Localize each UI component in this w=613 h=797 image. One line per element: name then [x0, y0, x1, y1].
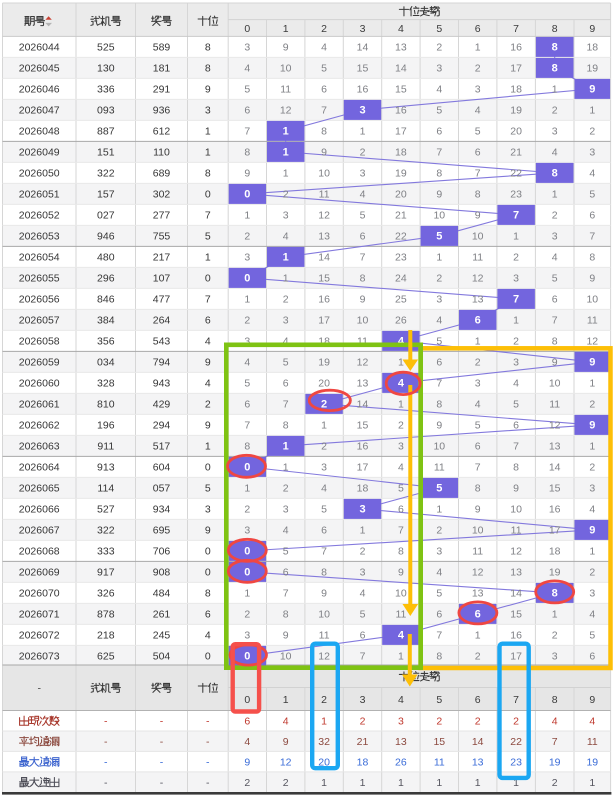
- svg-text:26: 26: [395, 756, 407, 768]
- svg-text:6: 6: [475, 147, 481, 159]
- svg-text:5: 5: [589, 630, 595, 642]
- svg-text:11: 11: [395, 609, 406, 621]
- svg-text:322: 322: [97, 168, 115, 180]
- svg-text:11: 11: [434, 462, 445, 474]
- svg-text:625: 625: [97, 651, 115, 663]
- svg-text:1: 1: [321, 777, 327, 789]
- svg-text:-: -: [160, 777, 164, 789]
- svg-text:6: 6: [283, 567, 289, 579]
- svg-text:4: 4: [283, 716, 289, 728]
- svg-text:0: 0: [205, 189, 211, 201]
- svg-text:6: 6: [244, 105, 250, 117]
- svg-text:4: 4: [475, 399, 481, 411]
- svg-text:2026059: 2026059: [19, 357, 60, 369]
- svg-text:1: 1: [552, 189, 558, 201]
- svg-text:11: 11: [434, 756, 445, 768]
- svg-text:22: 22: [510, 168, 522, 180]
- svg-text:7: 7: [205, 294, 211, 306]
- svg-text:13: 13: [357, 378, 369, 390]
- svg-text:6: 6: [436, 357, 442, 369]
- svg-text:3: 3: [475, 378, 481, 390]
- svg-text:2: 2: [244, 231, 250, 243]
- svg-text:0: 0: [244, 273, 250, 285]
- svg-text:7: 7: [513, 23, 519, 35]
- svg-text:9: 9: [205, 525, 211, 537]
- svg-text:12: 12: [586, 336, 598, 348]
- svg-text:2: 2: [244, 504, 250, 516]
- svg-text:8: 8: [360, 273, 366, 285]
- svg-text:20: 20: [510, 126, 522, 138]
- svg-text:911: 911: [97, 441, 114, 453]
- svg-text:2: 2: [436, 525, 442, 537]
- svg-text:22: 22: [510, 736, 522, 748]
- svg-text:110: 110: [153, 147, 170, 159]
- svg-text:8: 8: [283, 609, 289, 621]
- svg-text:589: 589: [153, 42, 171, 54]
- svg-text:2026060: 2026060: [19, 378, 60, 390]
- svg-text:25: 25: [395, 294, 407, 306]
- svg-text:13: 13: [395, 42, 407, 54]
- svg-text:2: 2: [475, 651, 481, 663]
- svg-text:14: 14: [318, 252, 330, 264]
- svg-text:3: 3: [552, 126, 558, 138]
- svg-text:17: 17: [510, 651, 522, 663]
- svg-text:7: 7: [436, 378, 442, 390]
- svg-text:12: 12: [280, 756, 292, 768]
- svg-text:13: 13: [395, 736, 407, 748]
- svg-text:17: 17: [510, 63, 522, 75]
- svg-text:15: 15: [318, 273, 330, 285]
- svg-text:15: 15: [357, 420, 369, 432]
- svg-text:2: 2: [283, 483, 289, 495]
- svg-text:2: 2: [475, 357, 481, 369]
- svg-text:-: -: [104, 777, 108, 789]
- svg-text:5: 5: [244, 378, 250, 390]
- svg-text:1: 1: [283, 694, 289, 706]
- svg-text:8: 8: [436, 399, 442, 411]
- svg-text:3: 3: [436, 294, 442, 306]
- svg-text:429: 429: [153, 399, 171, 411]
- svg-text:604: 604: [153, 462, 171, 474]
- svg-text:2026065: 2026065: [19, 483, 60, 495]
- svg-text:10: 10: [318, 168, 330, 180]
- svg-text:10: 10: [395, 588, 407, 600]
- svg-text:9: 9: [205, 420, 211, 432]
- svg-text:19: 19: [549, 756, 561, 768]
- svg-text:3: 3: [321, 462, 327, 474]
- svg-text:3: 3: [589, 588, 595, 600]
- svg-text:7: 7: [589, 231, 595, 243]
- svg-text:11: 11: [472, 546, 483, 558]
- svg-text:3: 3: [475, 84, 481, 96]
- svg-text:7: 7: [360, 651, 366, 663]
- svg-text:5: 5: [283, 546, 289, 558]
- svg-text:7: 7: [436, 147, 442, 159]
- svg-text:10: 10: [433, 441, 445, 453]
- svg-text:2: 2: [513, 336, 519, 348]
- svg-text:6: 6: [244, 399, 250, 411]
- svg-text:1: 1: [589, 105, 595, 117]
- svg-text:934: 934: [153, 504, 171, 516]
- svg-text:7: 7: [205, 210, 211, 222]
- svg-text:1: 1: [513, 231, 519, 243]
- svg-text:1: 1: [244, 294, 250, 306]
- svg-text:13: 13: [472, 294, 484, 306]
- svg-text:11: 11: [472, 252, 483, 264]
- svg-text:6: 6: [475, 609, 481, 621]
- svg-text:1: 1: [205, 147, 211, 159]
- svg-text:1: 1: [283, 252, 289, 264]
- svg-text:7: 7: [513, 210, 519, 222]
- svg-text:14: 14: [472, 736, 484, 748]
- svg-text:23: 23: [395, 252, 407, 264]
- svg-text:2026068: 2026068: [19, 546, 60, 558]
- svg-text:4: 4: [244, 357, 250, 369]
- svg-text:7: 7: [321, 546, 327, 558]
- svg-text:527: 527: [97, 504, 115, 516]
- svg-text:9: 9: [589, 273, 595, 285]
- svg-text:9: 9: [552, 357, 558, 369]
- svg-text:6: 6: [475, 23, 481, 35]
- svg-text:8: 8: [244, 147, 250, 159]
- svg-text:1: 1: [436, 252, 442, 264]
- svg-text:384: 384: [97, 315, 115, 327]
- svg-text:16: 16: [357, 84, 369, 96]
- svg-text:19: 19: [395, 168, 407, 180]
- svg-text:1: 1: [589, 441, 595, 453]
- svg-text:0: 0: [244, 23, 250, 35]
- svg-text:16: 16: [510, 42, 522, 54]
- svg-text:8: 8: [475, 483, 481, 495]
- svg-text:3: 3: [398, 716, 404, 728]
- svg-text:2026051: 2026051: [19, 189, 60, 201]
- svg-text:1: 1: [283, 273, 289, 285]
- svg-text:2026044: 2026044: [19, 42, 60, 54]
- svg-text:887: 887: [97, 126, 115, 138]
- svg-text:10: 10: [472, 231, 484, 243]
- svg-text:-: -: [104, 756, 108, 768]
- svg-text:1: 1: [475, 630, 481, 642]
- svg-text:32: 32: [318, 736, 330, 748]
- svg-text:4: 4: [552, 147, 558, 159]
- svg-text:7: 7: [513, 441, 519, 453]
- svg-text:107: 107: [153, 273, 171, 285]
- svg-text:8: 8: [552, 694, 558, 706]
- svg-text:8: 8: [321, 126, 327, 138]
- svg-text:2026055: 2026055: [19, 273, 60, 285]
- svg-text:4: 4: [398, 462, 404, 474]
- svg-text:4: 4: [398, 23, 404, 35]
- svg-text:2: 2: [552, 777, 558, 789]
- svg-text:2: 2: [589, 399, 595, 411]
- svg-text:11: 11: [511, 525, 522, 537]
- svg-text:1: 1: [436, 504, 442, 516]
- svg-text:4: 4: [513, 378, 519, 390]
- svg-text:-: -: [104, 716, 108, 728]
- svg-text:5: 5: [436, 231, 442, 243]
- svg-text:4: 4: [589, 504, 595, 516]
- svg-text:9: 9: [244, 168, 250, 180]
- svg-text:878: 878: [97, 609, 115, 621]
- svg-text:23: 23: [510, 189, 522, 201]
- svg-text:356: 356: [97, 336, 115, 348]
- svg-text:6: 6: [205, 315, 211, 327]
- svg-text:18: 18: [510, 84, 522, 96]
- svg-text:2: 2: [398, 420, 404, 432]
- svg-text:15: 15: [357, 63, 369, 75]
- svg-text:1: 1: [244, 210, 250, 222]
- svg-text:5: 5: [360, 609, 366, 621]
- svg-text:4: 4: [552, 252, 558, 264]
- svg-text:9: 9: [589, 420, 595, 432]
- svg-text:034: 034: [97, 357, 115, 369]
- svg-text:2: 2: [321, 23, 327, 35]
- svg-text:12: 12: [472, 273, 484, 285]
- svg-text:5: 5: [205, 231, 211, 243]
- svg-text:7: 7: [513, 694, 519, 706]
- svg-text:9: 9: [321, 588, 327, 600]
- svg-text:2: 2: [589, 126, 595, 138]
- svg-text:4: 4: [205, 378, 211, 390]
- svg-text:3: 3: [360, 23, 366, 35]
- svg-text:5: 5: [552, 273, 558, 285]
- svg-text:2026073: 2026073: [19, 651, 60, 663]
- svg-text:4: 4: [589, 716, 595, 728]
- svg-text:15: 15: [433, 736, 445, 748]
- svg-text:543: 543: [153, 336, 171, 348]
- svg-text:18: 18: [395, 147, 407, 159]
- svg-text:4: 4: [552, 716, 558, 728]
- svg-text:3: 3: [436, 546, 442, 558]
- svg-text:706: 706: [153, 546, 171, 558]
- svg-text:2026063: 2026063: [19, 441, 60, 453]
- svg-text:9: 9: [205, 357, 211, 369]
- svg-text:151: 151: [97, 147, 115, 159]
- svg-text:4: 4: [244, 63, 250, 75]
- svg-text:1: 1: [205, 252, 211, 264]
- svg-text:3: 3: [513, 357, 519, 369]
- svg-text:943: 943: [153, 378, 171, 390]
- svg-text:2026071: 2026071: [19, 609, 60, 621]
- svg-text:8: 8: [552, 588, 558, 600]
- svg-text:1: 1: [436, 777, 442, 789]
- svg-text:6: 6: [436, 126, 442, 138]
- svg-text:6: 6: [283, 378, 289, 390]
- svg-text:16: 16: [549, 504, 561, 516]
- svg-text:-: -: [206, 716, 210, 728]
- svg-text:9: 9: [436, 189, 442, 201]
- svg-text:8: 8: [205, 168, 211, 180]
- svg-text:8: 8: [552, 63, 558, 75]
- svg-text:14: 14: [357, 42, 369, 54]
- svg-text:0: 0: [244, 189, 250, 201]
- svg-text:4: 4: [244, 736, 250, 748]
- svg-text:0: 0: [244, 651, 250, 663]
- svg-text:6: 6: [475, 441, 481, 453]
- svg-text:936: 936: [153, 105, 171, 117]
- svg-text:1: 1: [513, 315, 519, 327]
- svg-text:9: 9: [205, 84, 211, 96]
- svg-text:2026056: 2026056: [19, 294, 60, 306]
- svg-text:2026069: 2026069: [19, 567, 60, 579]
- svg-text:5: 5: [436, 588, 442, 600]
- svg-text:5: 5: [475, 420, 481, 432]
- svg-text:9: 9: [589, 84, 595, 96]
- svg-text:1: 1: [283, 23, 289, 35]
- svg-text:3: 3: [244, 252, 250, 264]
- svg-text:2: 2: [283, 189, 289, 201]
- svg-text:21: 21: [357, 736, 369, 748]
- svg-text:22: 22: [395, 231, 407, 243]
- svg-text:7: 7: [552, 315, 558, 327]
- svg-text:4: 4: [475, 105, 481, 117]
- svg-text:2026047: 2026047: [19, 105, 60, 117]
- svg-text:0: 0: [205, 567, 211, 579]
- svg-text:20: 20: [395, 189, 407, 201]
- svg-text:3: 3: [360, 694, 366, 706]
- svg-text:480: 480: [97, 252, 115, 264]
- svg-text:1: 1: [244, 483, 250, 495]
- svg-text:810: 810: [97, 399, 115, 411]
- svg-text:18: 18: [357, 483, 369, 495]
- svg-text:218: 218: [97, 630, 115, 642]
- svg-text:1: 1: [589, 777, 595, 789]
- svg-text:7: 7: [283, 588, 289, 600]
- svg-text:1: 1: [398, 777, 404, 789]
- svg-text:-: -: [37, 683, 41, 695]
- svg-text:3: 3: [205, 105, 211, 117]
- svg-text:5: 5: [321, 504, 327, 516]
- svg-text:4: 4: [283, 525, 289, 537]
- svg-text:6: 6: [513, 420, 519, 432]
- svg-text:7: 7: [552, 736, 558, 748]
- svg-text:9: 9: [244, 756, 250, 768]
- svg-text:12: 12: [549, 420, 561, 432]
- svg-text:2: 2: [436, 716, 442, 728]
- svg-text:4: 4: [589, 168, 595, 180]
- svg-text:16: 16: [510, 630, 522, 642]
- svg-text:1: 1: [283, 126, 289, 138]
- svg-text:4: 4: [436, 567, 442, 579]
- svg-text:130: 130: [97, 63, 115, 75]
- svg-text:1: 1: [360, 777, 366, 789]
- svg-text:946: 946: [97, 231, 115, 243]
- svg-text:689: 689: [153, 168, 171, 180]
- svg-text:18: 18: [586, 42, 598, 54]
- svg-text:261: 261: [153, 609, 171, 621]
- svg-text:4: 4: [436, 315, 442, 327]
- svg-text:11: 11: [587, 315, 598, 327]
- svg-text:0: 0: [244, 694, 250, 706]
- svg-text:14: 14: [395, 63, 407, 75]
- svg-text:296: 296: [97, 273, 115, 285]
- svg-text:13: 13: [472, 756, 484, 768]
- svg-text:2026061: 2026061: [19, 399, 60, 411]
- svg-text:217: 217: [153, 252, 171, 264]
- svg-text:12: 12: [357, 357, 369, 369]
- svg-text:2026058: 2026058: [19, 336, 60, 348]
- svg-text:477: 477: [153, 294, 171, 306]
- svg-text:10: 10: [586, 294, 598, 306]
- svg-text:2: 2: [360, 546, 366, 558]
- svg-text:10: 10: [357, 315, 369, 327]
- svg-text:9: 9: [283, 736, 289, 748]
- svg-text:1: 1: [321, 420, 327, 432]
- svg-text:181: 181: [153, 63, 171, 75]
- svg-text:2026050: 2026050: [19, 168, 60, 180]
- svg-text:157: 157: [97, 189, 115, 201]
- svg-text:8: 8: [552, 42, 558, 54]
- svg-text:6: 6: [205, 609, 211, 621]
- svg-text:15: 15: [510, 609, 522, 621]
- svg-text:2: 2: [513, 716, 519, 728]
- svg-text:1: 1: [398, 399, 404, 411]
- svg-text:9: 9: [283, 630, 289, 642]
- svg-text:2: 2: [552, 630, 558, 642]
- svg-text:-: -: [160, 716, 164, 728]
- svg-text:4: 4: [283, 231, 289, 243]
- svg-text:-: -: [206, 736, 210, 748]
- svg-text:908: 908: [153, 567, 171, 579]
- svg-text:6: 6: [436, 609, 442, 621]
- svg-text:17: 17: [357, 462, 369, 474]
- svg-text:2: 2: [321, 441, 327, 453]
- svg-text:8: 8: [283, 420, 289, 432]
- svg-text:6: 6: [589, 651, 595, 663]
- svg-text:7: 7: [321, 105, 327, 117]
- svg-text:277: 277: [153, 210, 171, 222]
- svg-text:755: 755: [153, 231, 171, 243]
- svg-text:1: 1: [244, 588, 250, 600]
- svg-text:1: 1: [475, 42, 481, 54]
- svg-text:10: 10: [280, 651, 292, 663]
- svg-text:14: 14: [510, 588, 522, 600]
- svg-text:5: 5: [360, 210, 366, 222]
- svg-text:7: 7: [244, 420, 250, 432]
- svg-text:8: 8: [398, 546, 404, 558]
- svg-text:8: 8: [436, 651, 442, 663]
- svg-text:1: 1: [205, 441, 211, 453]
- svg-text:6: 6: [321, 525, 327, 537]
- svg-text:2: 2: [283, 777, 289, 789]
- svg-text:6: 6: [475, 694, 481, 706]
- svg-text:2026066: 2026066: [19, 504, 60, 516]
- svg-text:245: 245: [153, 630, 171, 642]
- svg-text:7: 7: [360, 252, 366, 264]
- svg-text:2: 2: [360, 716, 366, 728]
- svg-text:11: 11: [319, 189, 330, 201]
- svg-text:1: 1: [360, 126, 366, 138]
- svg-text:2026048: 2026048: [19, 126, 60, 138]
- svg-text:24: 24: [395, 273, 407, 285]
- svg-text:5: 5: [244, 84, 250, 96]
- svg-text:0: 0: [244, 567, 250, 579]
- svg-text:3: 3: [552, 231, 558, 243]
- svg-text:8: 8: [552, 336, 558, 348]
- svg-text:3: 3: [283, 504, 289, 516]
- svg-text:1: 1: [283, 147, 289, 159]
- svg-text:5: 5: [436, 336, 442, 348]
- svg-text:6: 6: [475, 315, 481, 327]
- svg-text:3: 3: [360, 567, 366, 579]
- svg-text:13: 13: [510, 567, 522, 579]
- svg-text:2026052: 2026052: [19, 210, 60, 222]
- svg-text:1: 1: [552, 84, 558, 96]
- svg-text:19: 19: [586, 756, 598, 768]
- svg-text:9: 9: [475, 504, 481, 516]
- svg-text:612: 612: [153, 126, 171, 138]
- svg-text:794: 794: [153, 357, 171, 369]
